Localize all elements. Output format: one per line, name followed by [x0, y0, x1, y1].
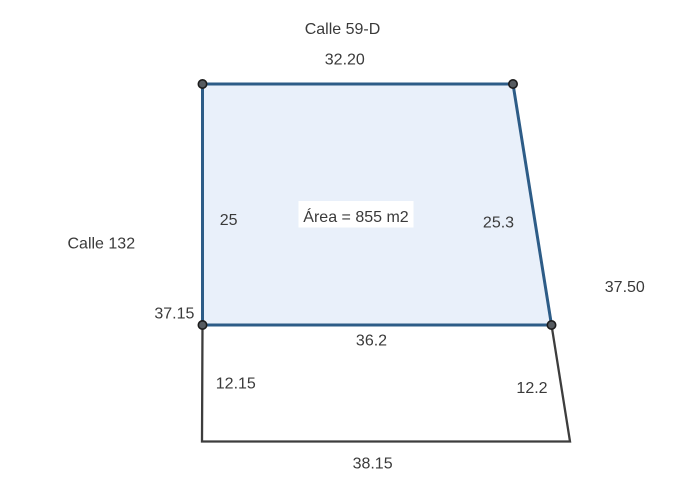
svg-text:Calle 59-D: Calle 59-D — [305, 21, 381, 38]
svg-text:25.3: 25.3 — [483, 215, 514, 232]
svg-text:12.15: 12.15 — [216, 376, 256, 393]
svg-text:37.50: 37.50 — [605, 279, 645, 296]
svg-text:32.20: 32.20 — [325, 52, 365, 69]
svg-text:Área = 855 m2: Área = 855 m2 — [303, 207, 409, 226]
svg-text:37.15: 37.15 — [154, 306, 194, 323]
svg-text:38.15: 38.15 — [353, 456, 393, 473]
svg-text:36.2: 36.2 — [356, 333, 387, 350]
svg-text:12.2: 12.2 — [516, 380, 547, 397]
svg-text:Calle 132: Calle 132 — [67, 236, 135, 253]
svg-text:25: 25 — [220, 212, 238, 229]
